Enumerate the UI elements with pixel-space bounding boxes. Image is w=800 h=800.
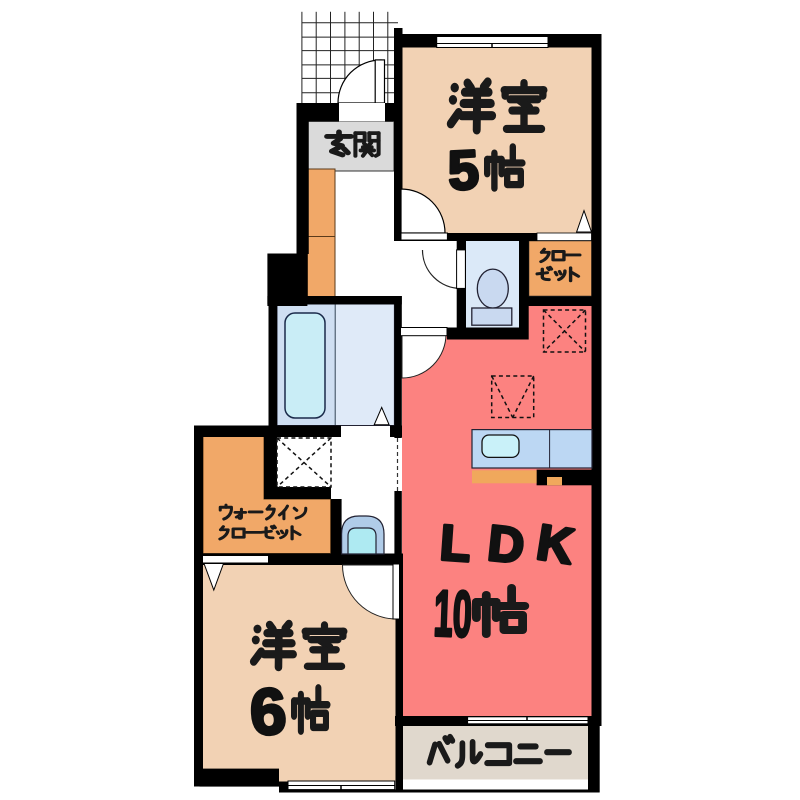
svg-text:6: 6 [248, 674, 288, 749]
svg-text:D: D [485, 515, 527, 574]
svg-text:L: L [438, 514, 472, 572]
svg-text:10: 10 [433, 576, 474, 650]
svg-text:5: 5 [447, 138, 481, 202]
